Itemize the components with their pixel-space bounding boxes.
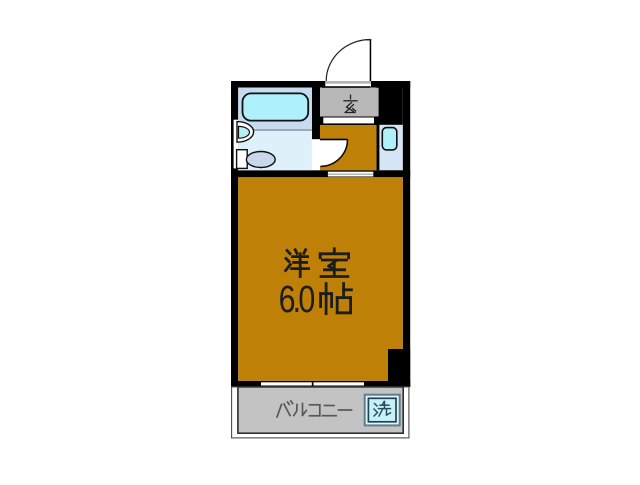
svg-text:0: 0: [298, 279, 315, 321]
